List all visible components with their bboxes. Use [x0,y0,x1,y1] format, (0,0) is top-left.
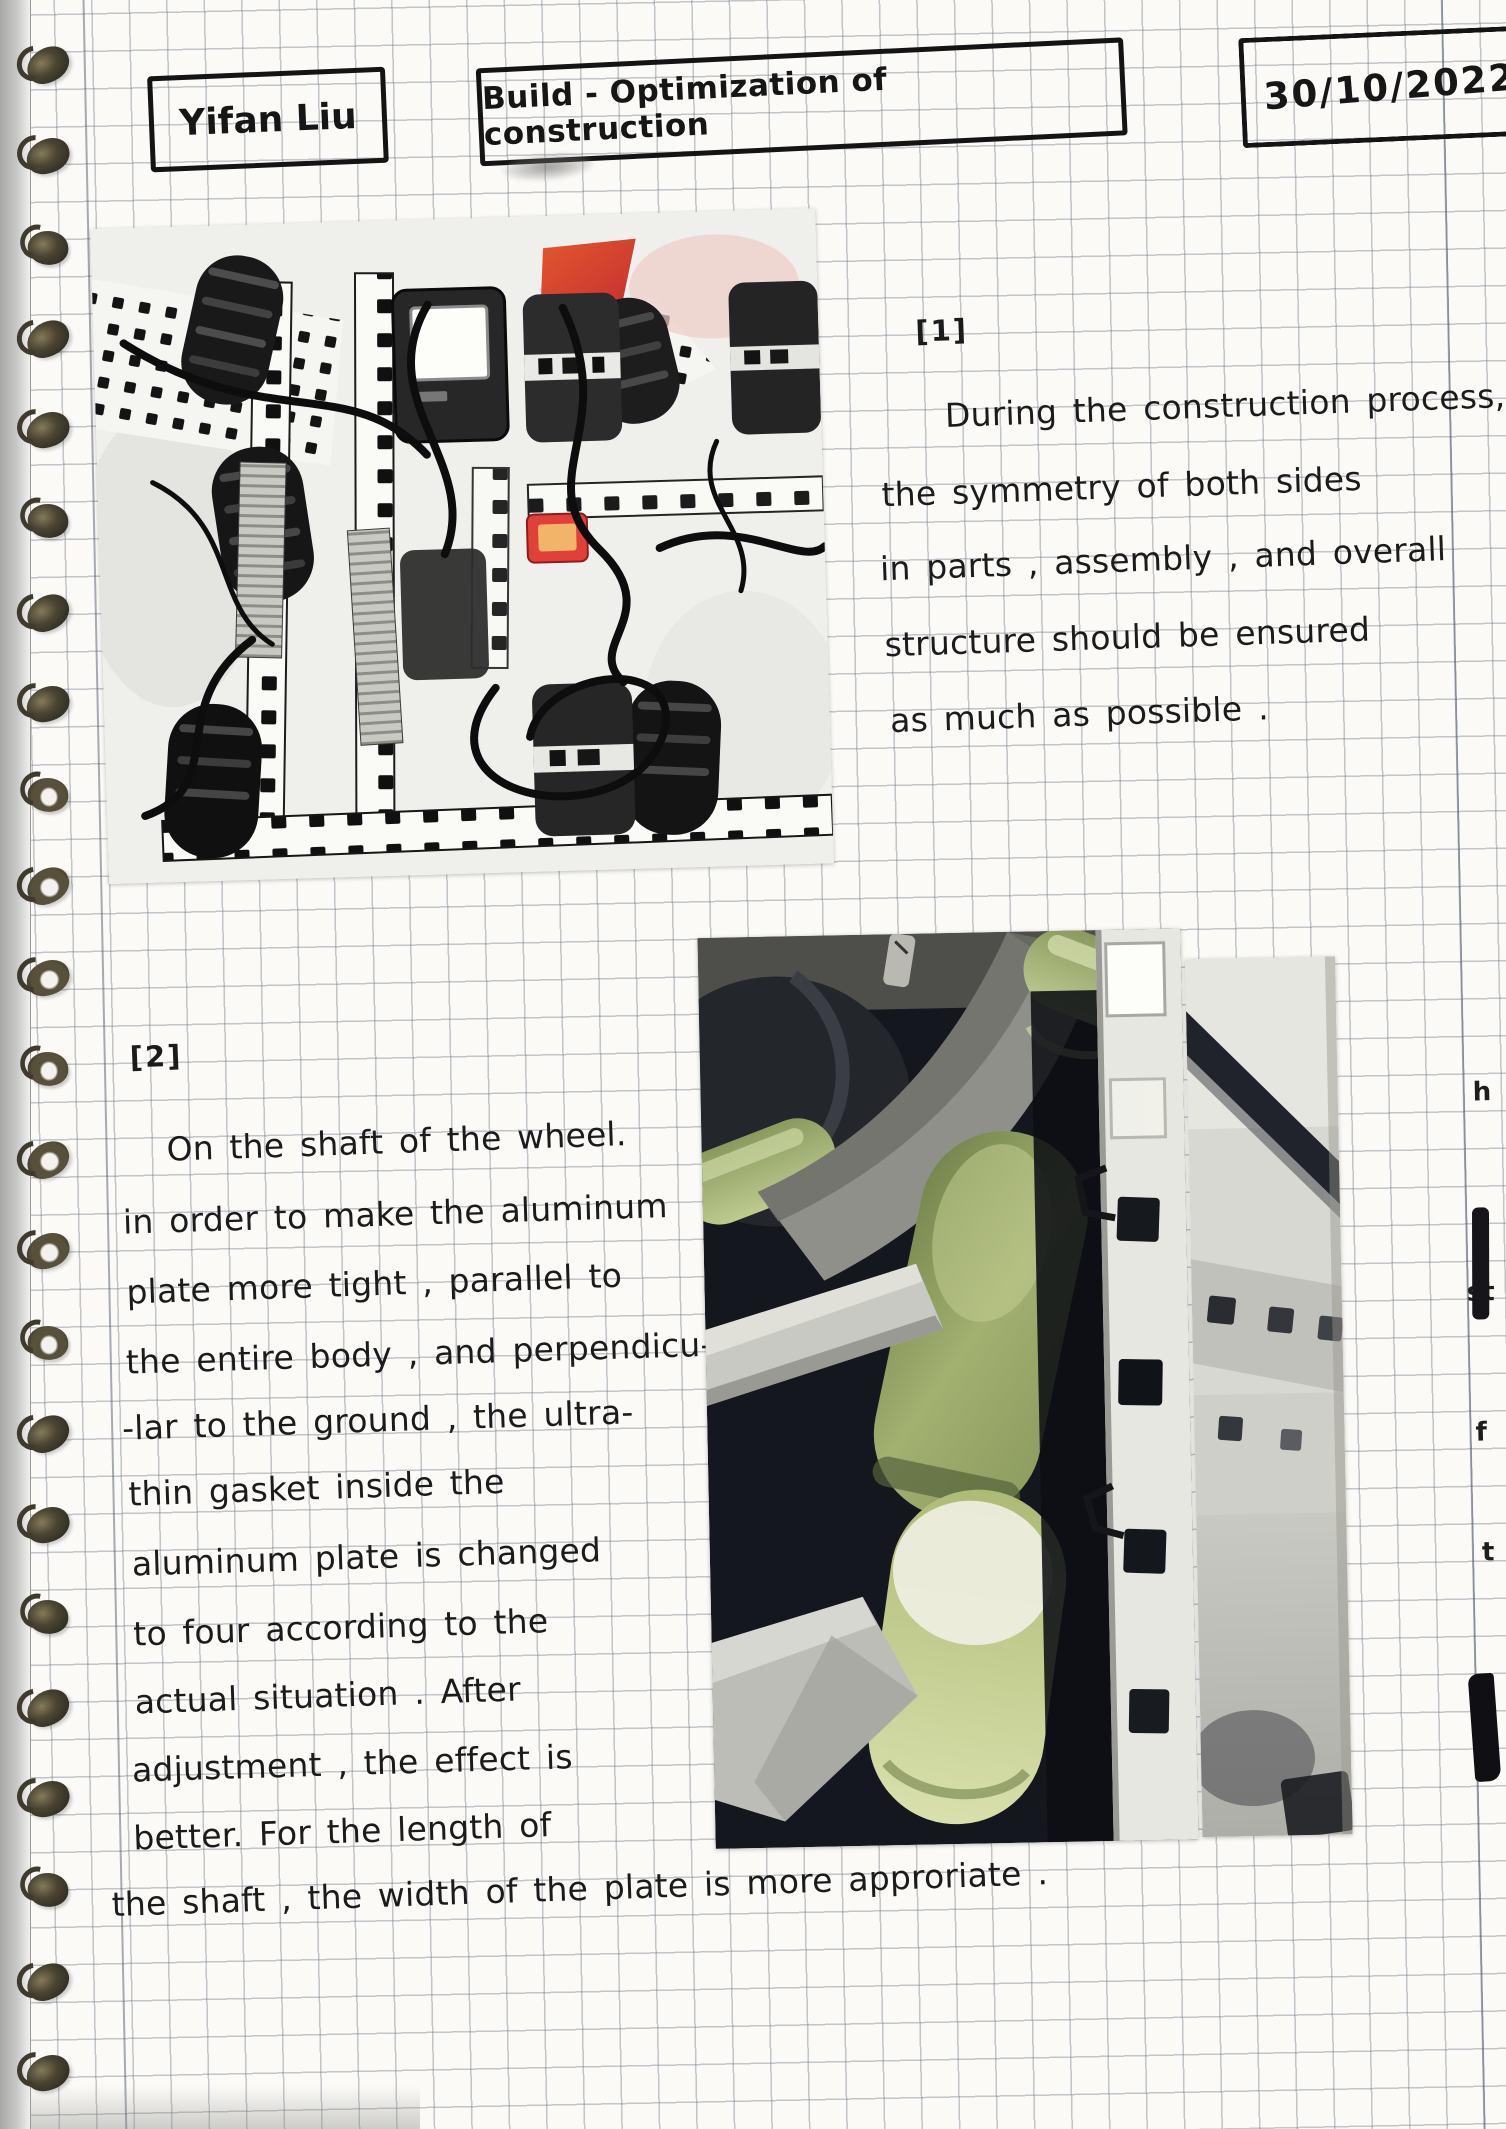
binding-hole [21,862,75,911]
binding-hole [21,1683,75,1732]
binding-hole [22,408,74,453]
edge-ink-bar [1472,1207,1489,1319]
binding-hole [27,503,70,540]
binding-hole [22,681,74,726]
spiral-binding [26,48,84,2090]
binding-hole [22,1777,74,1822]
binding-hole [27,229,70,266]
cut-off-letter: h [1472,1077,1491,1107]
binding-hole [22,1229,74,1274]
page-bottom-edge-shadow [0,2086,420,2129]
author-name-box: Yifan Liu [147,67,389,173]
binding-hole [27,1051,70,1088]
wheel-photo [697,928,1198,1849]
chassis-photo-art [90,208,834,884]
paper-sheet: Yifan Liu Build - Optimization of constr… [0,0,1506,2129]
binding-hole [21,314,75,363]
binding-hole [21,1957,75,2006]
note2-label: [2] [129,1039,183,1075]
binding-hole [21,41,75,90]
rail-photo [1185,956,1353,1837]
binding-hole [27,1872,70,1909]
binding-hole [27,1324,70,1361]
binding-hole [27,777,70,814]
note1-label: [1] [915,313,969,349]
binding-hole [22,955,74,1000]
entry-date: 30/10/2022 [1262,55,1506,118]
binding-hole [22,1503,74,1548]
binding-hole [21,588,75,637]
wheel-photo-art [697,928,1198,1849]
binding-hole [27,1598,70,1635]
binding-hole [22,134,74,179]
rail-photo-art [1185,956,1353,1837]
binding-hole [21,1410,75,1459]
entry-title: Build - Optimization of construction [481,51,1122,154]
chassis-photo [90,208,834,884]
binding-hole [21,1136,75,1185]
cut-off-letter: t [1482,1537,1495,1567]
cut-off-letter: f [1475,1417,1487,1447]
author-name: Yifan Liu [178,95,357,143]
date-box: 30/10/2022 [1238,23,1506,148]
binding-hole [22,2050,74,2095]
notebook-page: Yifan Liu Build - Optimization of constr… [0,0,1506,2129]
